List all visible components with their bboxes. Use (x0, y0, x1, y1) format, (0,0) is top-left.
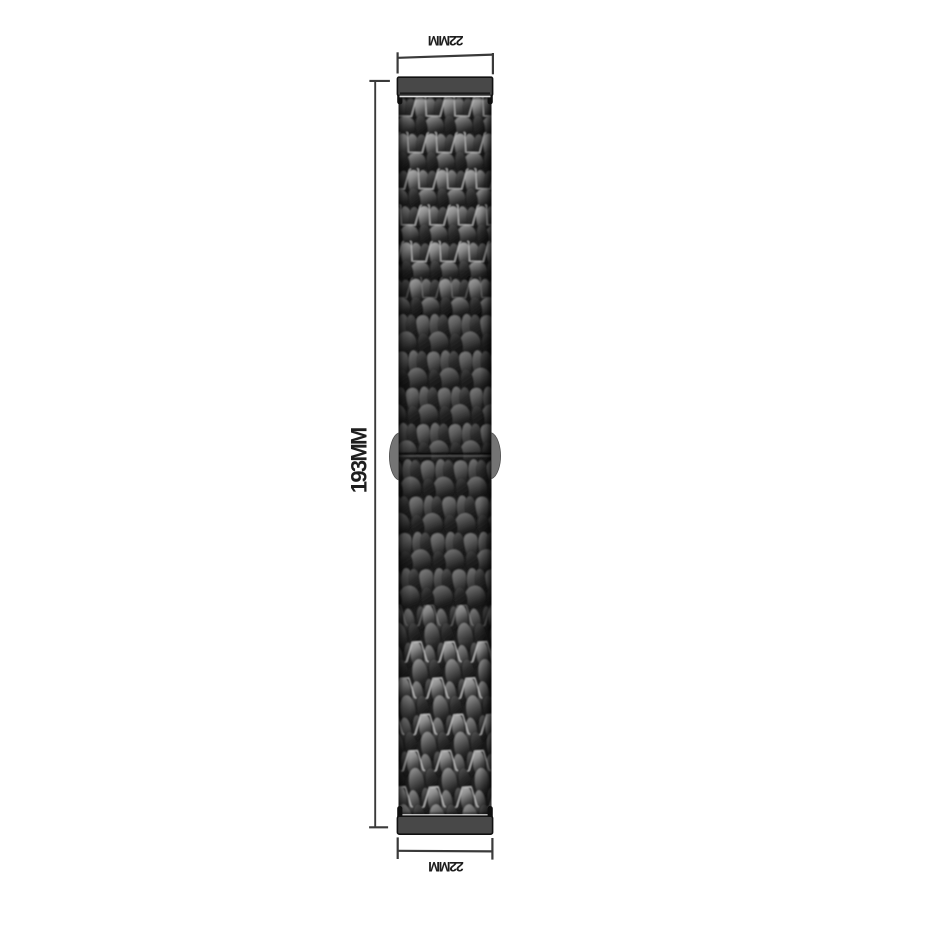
svg-text:22MM: 22MM (429, 32, 464, 48)
svg-text:22MM: 22MM (429, 858, 464, 874)
svg-text:193MM: 193MM (347, 428, 372, 493)
